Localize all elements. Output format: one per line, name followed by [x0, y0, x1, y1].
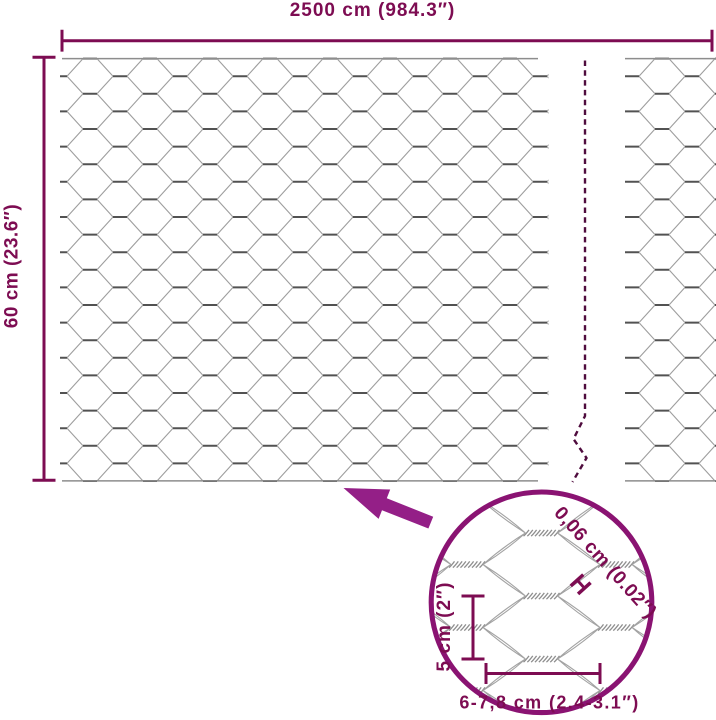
svg-text:6-7,8 cm (2.4-3.1″): 6-7,8 cm (2.4-3.1″) — [459, 693, 639, 713]
svg-text:2500 cm (984.3″): 2500 cm (984.3″) — [290, 0, 456, 21]
svg-text:5 cm (2″): 5 cm (2″) — [434, 582, 455, 672]
svg-text:60 cm (23.6″): 60 cm (23.6″) — [2, 204, 23, 328]
